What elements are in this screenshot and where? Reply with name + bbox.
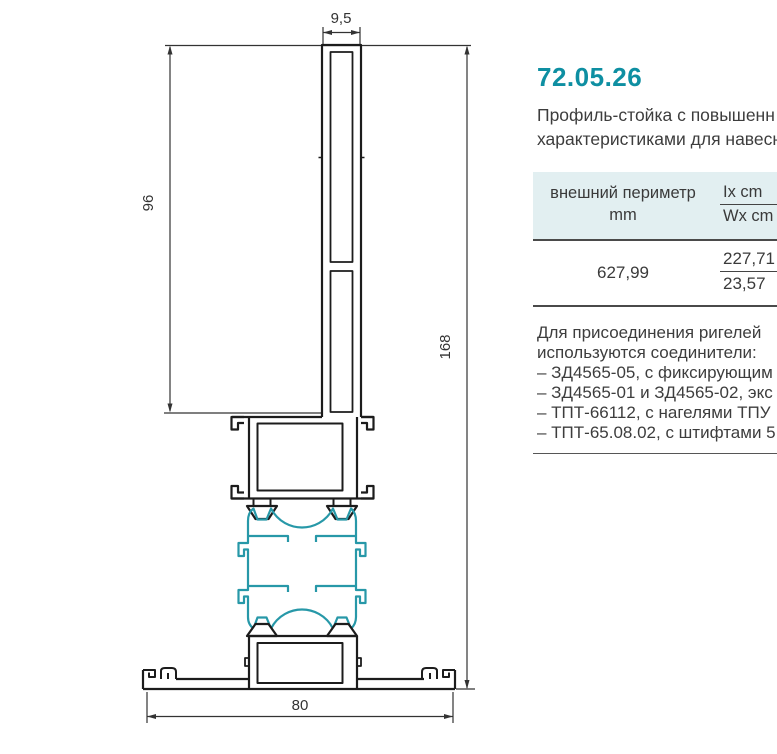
catalog-page: { "product": { "code": "72.05.26", "desc…: [0, 0, 777, 754]
dimension-arrowheads: [147, 30, 470, 719]
table-rule-bottom: [533, 305, 777, 307]
profile-cross-section-drawing: 9,5 96 168 80: [0, 0, 520, 754]
product-description-line2: характеристиками для навесн: [537, 128, 777, 152]
dimension-lines: [147, 27, 475, 723]
notes-rule-bottom: [533, 453, 777, 454]
notes-item: – ТПТ-65.08.02, с штифтами 5: [537, 423, 776, 443]
perimeter-header: внешний периметр mm: [533, 183, 713, 226]
moment-header-fraction: Ix cm Wx cm: [720, 183, 777, 226]
connector-notes: Для присоединения ригелей используются с…: [537, 323, 776, 443]
product-description: Профиль-стойка с повышенн характеристика…: [537, 104, 777, 151]
dim-top-label: 9,5: [331, 10, 352, 27]
dim-right-label: 168: [437, 334, 454, 359]
spec-table-header: внешний периметр mm Ix cm Wx cm: [533, 172, 777, 239]
wx-value: 23,57: [720, 272, 777, 294]
product-code: 72.05.26: [537, 62, 642, 93]
notes-intro-line2: используются соединители:: [537, 343, 776, 363]
dim-bottom-label: 80: [292, 697, 309, 714]
notes-item: – ЗД4565-01 и ЗД4565-02, экс: [537, 383, 776, 403]
ix-value: 227,71: [720, 249, 777, 272]
notes-intro-line1: Для присоединения ригелей: [537, 323, 776, 343]
spec-table-row: 627,99 227,71 23,57: [533, 241, 777, 305]
product-description-line1: Профиль-стойка с повышенн: [537, 104, 777, 128]
aluminium-profile-lower: [143, 624, 455, 689]
ix-header: Ix cm: [720, 183, 777, 205]
notes-item: – ЗД4565-05, с фиксирующим: [537, 363, 776, 383]
perimeter-header-line2: mm: [533, 205, 713, 227]
product-info-panel: 72.05.26 Профиль-стойка с повышенн харак…: [533, 0, 777, 754]
perimeter-value: 627,99: [533, 263, 713, 283]
thermal-break-insulator: [239, 509, 366, 629]
wx-header: Wx cm: [720, 205, 777, 226]
perimeter-header-line1: внешний периметр: [533, 183, 713, 205]
moment-value-fraction: 227,71 23,57: [720, 249, 777, 294]
notes-item: – ТПТ-66112, с нагелями ТПУ: [537, 403, 776, 423]
dim-left-label: 96: [140, 195, 157, 212]
aluminium-profile-upper: [232, 45, 374, 519]
